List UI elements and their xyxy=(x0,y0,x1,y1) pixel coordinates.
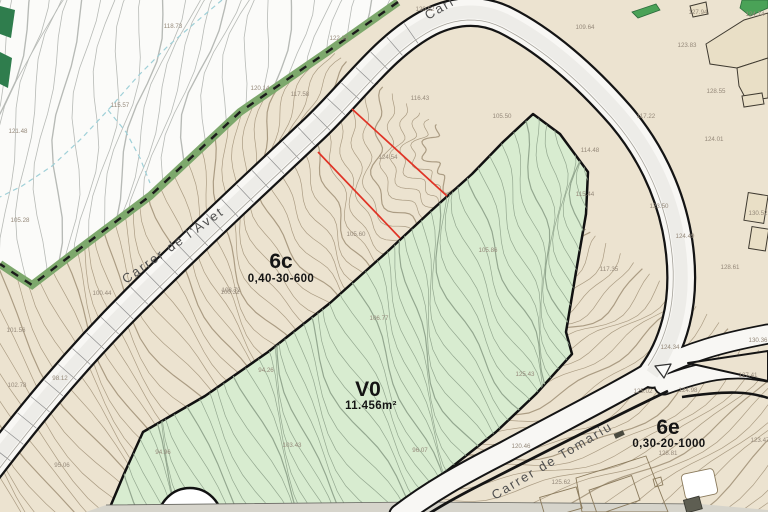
svg-text:124.49: 124.49 xyxy=(676,233,695,240)
svg-text:94.26: 94.26 xyxy=(258,367,274,374)
svg-text:105.50: 105.50 xyxy=(493,113,512,120)
svg-text:127.94: 127.94 xyxy=(689,9,708,16)
svg-text:130.36: 130.36 xyxy=(749,337,768,344)
svg-text:109.64: 109.64 xyxy=(576,24,595,31)
svg-text:125.43: 125.43 xyxy=(516,371,535,378)
svg-text:96.07: 96.07 xyxy=(412,447,428,454)
zone-spec-6c: 0,40-30-600 xyxy=(248,273,314,285)
svg-text:100.32: 100.32 xyxy=(221,289,240,296)
svg-text:116.43: 116.43 xyxy=(411,95,430,102)
svg-text:101.56: 101.56 xyxy=(7,327,26,334)
svg-text:120.52: 120.52 xyxy=(416,6,435,13)
svg-text:120.14: 120.14 xyxy=(251,85,270,92)
svg-text:100.44: 100.44 xyxy=(93,290,112,297)
svg-text:124.34: 124.34 xyxy=(661,344,680,351)
zone-code-6e: 6e xyxy=(656,416,679,439)
svg-text:130.52: 130.52 xyxy=(749,210,768,217)
svg-text:125.02: 125.02 xyxy=(634,388,653,395)
svg-text:124.54: 124.54 xyxy=(379,154,398,161)
svg-text:122.32: 122.32 xyxy=(330,35,349,42)
zone-code-v0: V0 xyxy=(355,378,381,401)
svg-text:98.12: 98.12 xyxy=(52,375,68,382)
map-canvas[interactable]: Carrer de l'Avet Carrer de Tomariu Carr … xyxy=(0,0,768,512)
svg-text:94.96: 94.96 xyxy=(155,449,171,456)
svg-text:105.60: 105.60 xyxy=(347,231,366,238)
zone-code-6c: 6c xyxy=(269,250,293,273)
svg-text:114.48: 114.48 xyxy=(581,147,600,154)
svg-text:124.01: 124.01 xyxy=(705,136,724,143)
svg-text:106.77: 106.77 xyxy=(370,315,389,322)
svg-text:115.44: 115.44 xyxy=(576,191,595,198)
svg-text:120.46: 120.46 xyxy=(512,443,531,450)
svg-text:124.98: 124.98 xyxy=(679,387,698,394)
svg-text:125.62: 125.62 xyxy=(552,479,571,486)
zone-area-v0: 11.456m² xyxy=(345,400,397,412)
svg-text:115.57: 115.57 xyxy=(111,102,130,109)
svg-text:117.22: 117.22 xyxy=(637,113,656,120)
svg-text:128.55: 128.55 xyxy=(707,88,726,95)
svg-text:121.48: 121.48 xyxy=(9,128,28,135)
svg-text:117.58: 117.58 xyxy=(291,91,310,98)
svg-text:117.35: 117.35 xyxy=(600,266,619,273)
svg-text:124.74: 124.74 xyxy=(746,11,765,18)
svg-text:127.41: 127.41 xyxy=(739,372,758,379)
svg-text:105.86: 105.86 xyxy=(479,247,498,254)
svg-text:95.06: 95.06 xyxy=(54,462,70,469)
zone-elev-6e: 128.81 xyxy=(659,450,678,457)
svg-text:105.28: 105.28 xyxy=(11,217,30,224)
svg-text:103.43: 103.43 xyxy=(283,442,302,449)
svg-text:128.61: 128.61 xyxy=(721,264,740,271)
svg-text:123.83: 123.83 xyxy=(678,42,697,49)
svg-text:123.50: 123.50 xyxy=(650,203,669,210)
svg-text:123.47: 123.47 xyxy=(751,437,768,444)
zone-spec-6e: 0,30-20-1000 xyxy=(632,438,705,450)
svg-text:118.73: 118.73 xyxy=(164,23,183,30)
svg-text:102.78: 102.78 xyxy=(8,382,27,389)
